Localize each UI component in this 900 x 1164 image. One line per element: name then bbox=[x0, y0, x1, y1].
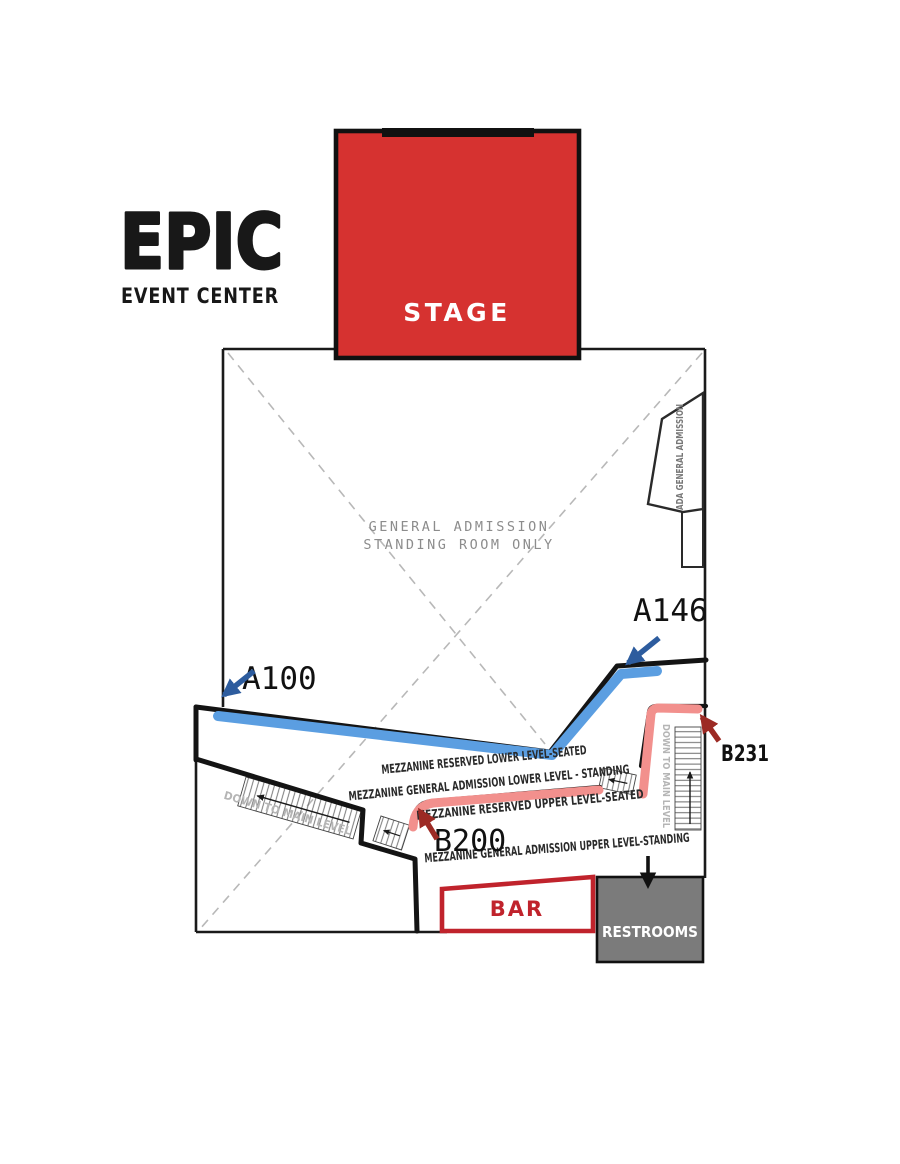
floor-ga-line2: STANDING ROOM ONLY bbox=[363, 537, 554, 553]
restrooms-area: RESTROOMS bbox=[597, 856, 703, 962]
stairs-small-left bbox=[373, 816, 410, 850]
bar-area: BAR bbox=[442, 877, 593, 931]
stage-area: STAGE bbox=[336, 128, 579, 358]
bar-label: BAR bbox=[490, 897, 544, 921]
stairs-down-left: DOWN TO MAIN LEVEL bbox=[222, 773, 361, 839]
a146-pointer-arrow-icon bbox=[628, 638, 659, 663]
floor-ga-text: GENERAL ADMISSION STANDING ROOM ONLY bbox=[363, 519, 554, 553]
stage-label: STAGE bbox=[403, 298, 511, 327]
ada-label: ADA GENERAL ADMISSION bbox=[675, 404, 686, 510]
restrooms-label: RESTROOMS bbox=[602, 923, 698, 941]
stairs-down-right-label: DOWN TO MAIN LEVEL bbox=[660, 724, 671, 829]
floor-ga-line1: GENERAL ADMISSION bbox=[369, 519, 550, 535]
venue-map-page: ADA GENERAL ADMISSION DOWN TO MAIN LEVEL… bbox=[0, 0, 900, 1164]
venue-map: ADA GENERAL ADMISSION DOWN TO MAIN LEVEL… bbox=[0, 0, 900, 1164]
stairs-down-right: DOWN TO MAIN LEVEL bbox=[660, 724, 701, 830]
ada-section: ADA GENERAL ADMISSION bbox=[648, 393, 703, 567]
brand-tagline: EVENT CENTER bbox=[121, 284, 279, 308]
seat-marker-a146: A146 bbox=[633, 593, 708, 629]
seat-marker-a100: A100 bbox=[242, 661, 317, 697]
stage-back-notch bbox=[382, 128, 534, 137]
brand-logo-block: EPIC EVENT CENTER bbox=[120, 197, 283, 308]
seat-marker-b200: B200 bbox=[434, 824, 506, 859]
brand-logo: EPIC bbox=[120, 197, 283, 286]
seat-marker-b231: B231 bbox=[721, 742, 769, 767]
